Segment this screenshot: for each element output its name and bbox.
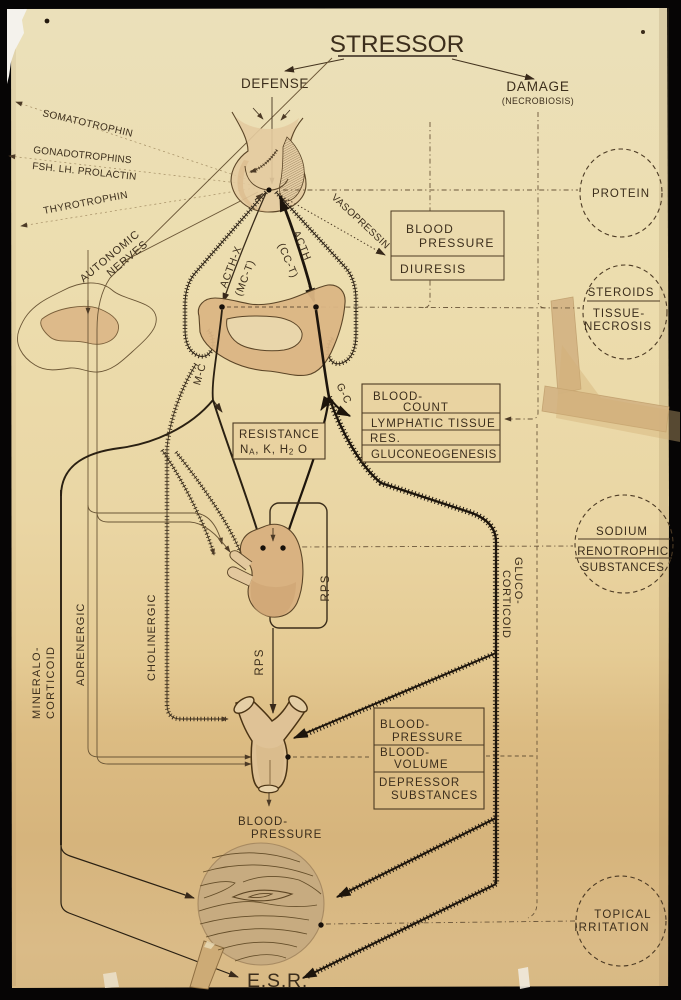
svg-text:TISSUE-: TISSUE- [593,308,645,320]
svg-text:CORTICOID: CORTICOID [45,646,57,719]
svg-text:BLOOD-: BLOOD- [380,747,430,759]
svg-text:NECROSIS: NECROSIS [584,321,652,333]
svg-text:LYMPHATIC TISSUE: LYMPHATIC TISSUE [371,418,496,430]
svg-text:GLUCONEOGENESIS: GLUCONEOGENESIS [371,449,497,461]
svg-text:PRESSURE: PRESSURE [251,829,322,841]
svg-text:RESISTANCE: RESISTANCE [239,429,320,441]
svg-text:BLOOD-: BLOOD- [238,816,288,828]
svg-text:SUBSTANCES: SUBSTANCES [581,562,664,574]
svg-text:PRESSURE: PRESSURE [419,236,495,250]
svg-text:SUBSTANCES: SUBSTANCES [391,790,478,802]
svg-text:DEPRESSOR: DEPRESSOR [379,777,460,789]
svg-text:RES.: RES. [370,433,401,445]
svg-text:E.S.R.: E.S.R. [247,970,308,992]
svg-text:IRRITATION: IRRITATION [574,922,649,934]
svg-text:BLOOD-: BLOOD- [380,719,430,731]
svg-text:CORTICOID: CORTICOID [500,570,512,639]
svg-text:MINERALO-: MINERALO- [31,646,43,719]
svg-text:TOPICAL: TOPICAL [594,909,651,921]
svg-text:(NECROBIOSIS): (NECROBIOSIS) [502,96,574,106]
svg-text:PROTEIN: PROTEIN [592,188,650,200]
svg-text:DAMAGE: DAMAGE [506,79,569,94]
svg-text:RPS: RPS [254,648,266,675]
svg-text:BLOOD: BLOOD [406,222,454,236]
svg-text:DIURESIS: DIURESIS [400,262,466,276]
svg-text:DEFENSE: DEFENSE [241,76,309,91]
svg-text:VOLUME: VOLUME [394,759,449,771]
svg-text:PRESSURE: PRESSURE [392,732,463,744]
svg-text:CHOLINERGIC: CHOLINERGIC [146,594,158,681]
svg-text:RPS: RPS [320,574,332,601]
svg-text:SODIUM: SODIUM [596,526,648,538]
svg-text:GLUCO-: GLUCO- [512,557,524,605]
svg-text:STRESSOR: STRESSOR [330,31,465,58]
svg-text:RENOTROPHIC: RENOTROPHIC [577,546,669,558]
svg-text:STEROIDS: STEROIDS [588,287,655,299]
svg-text:COUNT: COUNT [403,402,449,414]
svg-text:ADRENERGIC: ADRENERGIC [75,603,87,686]
